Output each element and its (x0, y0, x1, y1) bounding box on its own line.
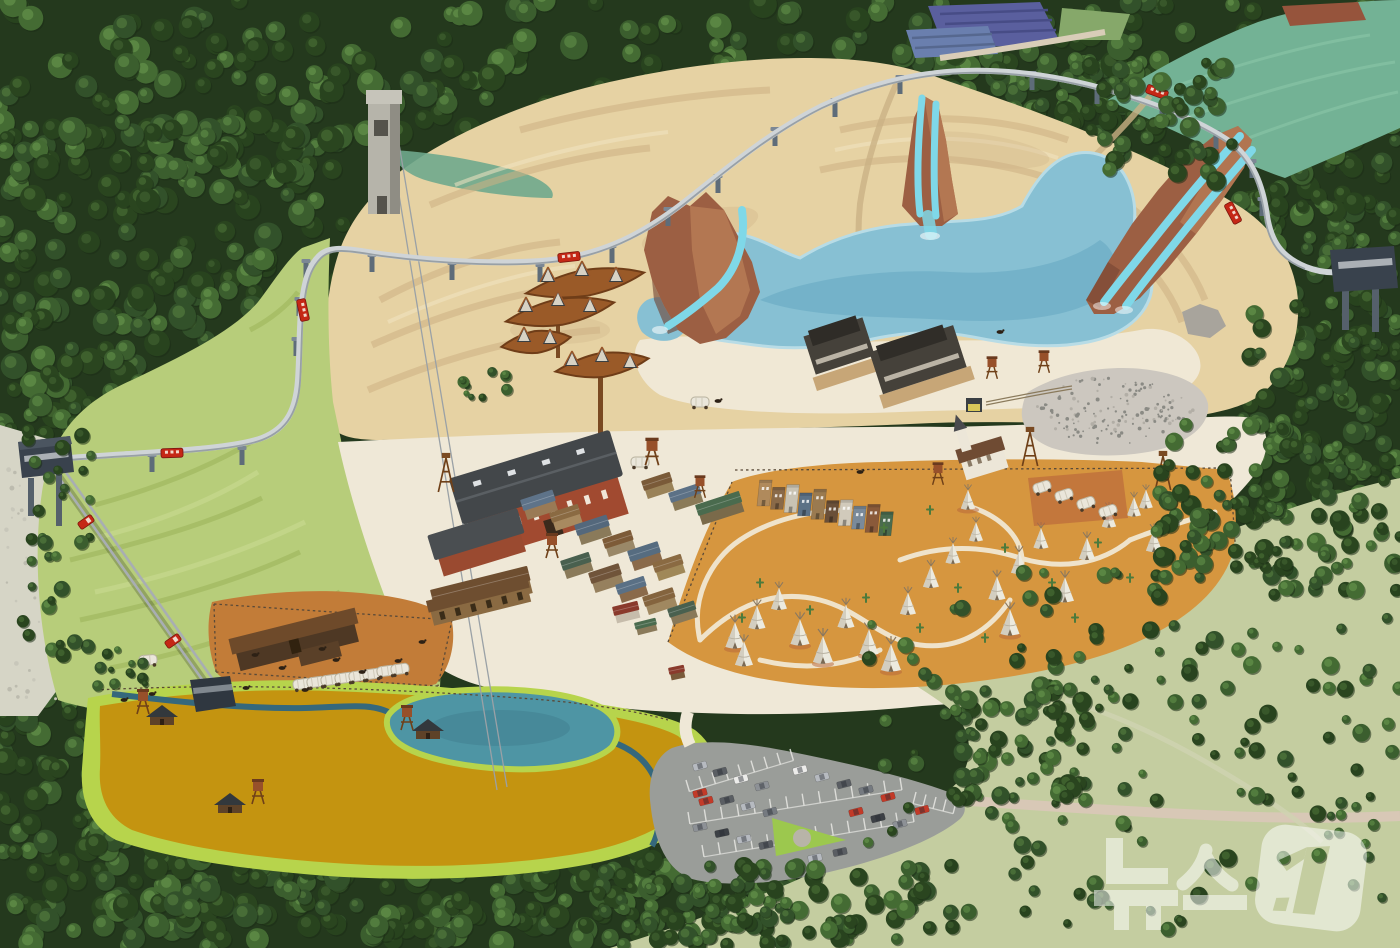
gravel-dot (1101, 430, 1103, 432)
gravel-dot (1058, 422, 1060, 424)
gravel-dot (1096, 390, 1098, 392)
gravel-dot (1115, 410, 1117, 412)
scree-dot (28, 669, 31, 672)
scree-dot (16, 695, 20, 699)
gravel-dot (1191, 408, 1195, 412)
gravel-dot (1096, 442, 1098, 444)
gravel-dot (1107, 407, 1109, 409)
gravel-dot (1144, 407, 1148, 411)
gravel-dot (1118, 419, 1121, 422)
gravel-dot (1163, 419, 1166, 422)
storefront-building (757, 480, 772, 506)
parking-island-gravel (793, 829, 811, 847)
gravel-dot (1132, 395, 1135, 398)
gravel-dot (1163, 396, 1165, 398)
gravel-dot (1093, 413, 1095, 415)
gravel-dot (1050, 416, 1053, 419)
scree-dot (13, 471, 17, 475)
gravel-dot (1091, 377, 1095, 381)
gravel-dot (1112, 421, 1115, 424)
gravel-dot (1077, 420, 1079, 422)
storefront-building (824, 501, 839, 523)
kiosk (966, 398, 982, 412)
gravel-dot (1076, 430, 1079, 433)
gravel-dot (1103, 379, 1105, 381)
gravel-dot (1070, 392, 1073, 395)
scree-dot (15, 685, 18, 688)
gravel-dot (1072, 418, 1074, 420)
gravel-dot (1075, 414, 1079, 418)
gravel-dot (1117, 434, 1121, 438)
gravel-dot (1161, 430, 1164, 433)
gravel-dot (1168, 401, 1171, 404)
gravel-dot (1136, 413, 1140, 417)
scree-dot (25, 696, 28, 699)
gravel-dot (1107, 425, 1109, 427)
wagon-pad (1028, 470, 1128, 526)
scree-dot (11, 508, 15, 512)
gravel-dot (1167, 394, 1170, 397)
gravel-dot (1120, 398, 1122, 400)
gravel-dot (1098, 383, 1101, 386)
gravel-dot (1140, 411, 1144, 415)
gravel-dot (1036, 405, 1039, 408)
gravel-dot (1180, 397, 1182, 399)
watermark-badge-1 (1252, 822, 1369, 934)
zipline-tower (366, 90, 402, 214)
storefront-building (784, 485, 799, 513)
gravel-dot (1167, 409, 1169, 411)
gravel-dot (1087, 402, 1090, 405)
scree-dot (15, 600, 18, 603)
scree-dot (6, 581, 8, 583)
gravel-dot (1138, 389, 1141, 392)
gravel-dot (1085, 410, 1087, 412)
gravel-dot (1066, 428, 1069, 431)
gravel-dot (1057, 396, 1061, 400)
gravel-dot (1070, 407, 1073, 410)
gravel-dot (1168, 421, 1172, 425)
covered-wagon (691, 397, 709, 409)
scree-dot (38, 621, 40, 623)
gravel-dot (1125, 383, 1127, 385)
gravel-dot (1042, 406, 1045, 409)
gravel-dot (1171, 399, 1174, 402)
gravel-dot (1132, 423, 1134, 425)
gravel-dot (1172, 420, 1174, 422)
gravel-dot (1099, 410, 1102, 413)
gravel-dot (1142, 418, 1144, 420)
scree-dot (9, 486, 14, 491)
gravel-dot (1107, 377, 1110, 380)
scree-dot (32, 678, 35, 681)
gravel-dot (1145, 435, 1147, 437)
scree-dot (20, 508, 24, 512)
scree-dot (54, 697, 57, 700)
gravel-dot (1096, 398, 1100, 402)
gravel-dot (1135, 384, 1138, 387)
aerial-rendering (0, 0, 1400, 948)
gravel-dot (1135, 389, 1138, 392)
parking-entry-path (686, 712, 690, 745)
gravel-dot (1092, 426, 1095, 429)
gravel-dot (1157, 414, 1159, 416)
gravel-dot (1074, 428, 1077, 431)
scree-dot (23, 517, 27, 521)
gravel-dot (1178, 417, 1181, 420)
gravel-dot (1149, 384, 1151, 386)
pond-depth (430, 710, 570, 746)
monorail-train (161, 448, 183, 458)
gravel-dot (1124, 420, 1127, 423)
gravel-dot (1082, 430, 1084, 432)
gravel-dot (1125, 393, 1129, 397)
gravel-dot (1170, 406, 1173, 409)
gravel-dot (1103, 419, 1105, 421)
gravel-dot (1117, 423, 1121, 427)
storefront-building (838, 500, 853, 526)
gravel-dot (1056, 414, 1059, 417)
gravel-dot (1073, 434, 1075, 436)
gravel-dot (1161, 409, 1163, 411)
gravel-dot (1063, 427, 1065, 429)
gravel-dot (1138, 427, 1142, 431)
gravel-dot (1093, 421, 1096, 424)
scree-dot (17, 512, 20, 515)
gravel-dot (1110, 432, 1113, 435)
gravel-dot (1096, 437, 1099, 440)
scree-dot (7, 687, 12, 692)
valley-station (190, 676, 236, 712)
gravel-dot (1050, 409, 1054, 413)
scree-dot (19, 485, 21, 487)
gravel-dot (1175, 419, 1177, 421)
storefront-building (878, 512, 893, 536)
gravel-dot (1167, 418, 1169, 420)
gravel-dot (1077, 400, 1079, 402)
gravel-dot (1113, 406, 1115, 408)
gravel-dot (1143, 422, 1146, 425)
gravel-dot (1145, 419, 1149, 423)
scree-dot (4, 528, 8, 532)
scree-dot (6, 546, 9, 549)
gravel-dot (1065, 417, 1069, 421)
scree-dot (25, 689, 30, 694)
gravel-dot (1132, 418, 1134, 420)
gravel-dot (1122, 385, 1125, 388)
gravel-dot (1152, 383, 1154, 385)
gravel-dot (1128, 388, 1131, 391)
gravel-dot (1113, 428, 1117, 432)
gravel-dot (1046, 404, 1048, 406)
gravel-dot (1126, 400, 1128, 402)
gravel-dot (1079, 380, 1082, 383)
gravel-dot (1165, 399, 1167, 401)
gravel-dot (1156, 403, 1159, 406)
gravel-dot (1158, 415, 1160, 417)
gravel-dot (1121, 415, 1123, 417)
gravel-dot (1160, 416, 1162, 418)
gravel-dot (1153, 420, 1156, 423)
gravel-dot (1094, 415, 1097, 418)
scree-dot (11, 517, 13, 519)
gravel-dot (1073, 422, 1075, 424)
gravel-dot (1123, 410, 1126, 413)
scree-dot (6, 467, 11, 472)
gravel-dot (1066, 425, 1069, 428)
gravel-dot (1148, 427, 1150, 429)
storefront-building (851, 506, 866, 529)
gravel-dot (1154, 406, 1158, 410)
gravel-dot (1141, 382, 1144, 385)
gravel-dot (1068, 436, 1070, 438)
gravel-dot (1072, 397, 1076, 401)
gravel-dot (1105, 428, 1107, 430)
gravel-dot (1110, 396, 1112, 398)
gravel-dot (1054, 427, 1057, 430)
monorail-train (558, 251, 581, 262)
gravel-dot (1079, 435, 1082, 438)
gravel-dot (1168, 415, 1171, 418)
storefront-building (770, 487, 785, 509)
screenshot-root: 뉴스1 (0, 0, 1400, 948)
gravel-dot (1126, 403, 1129, 406)
storefront-building (797, 493, 812, 516)
gravel-dot (1120, 431, 1123, 434)
storefront-building (865, 504, 880, 532)
gravel-dot (1162, 405, 1165, 408)
scree-dot (33, 596, 36, 599)
gravel-dot (1143, 386, 1146, 389)
gravel-dot (1129, 442, 1131, 444)
gravel-dot (1083, 407, 1086, 410)
scree-dot (14, 661, 19, 666)
gravel-dot (1075, 379, 1077, 381)
gravel-dot (1088, 427, 1090, 429)
gravel-dot (1125, 414, 1127, 416)
